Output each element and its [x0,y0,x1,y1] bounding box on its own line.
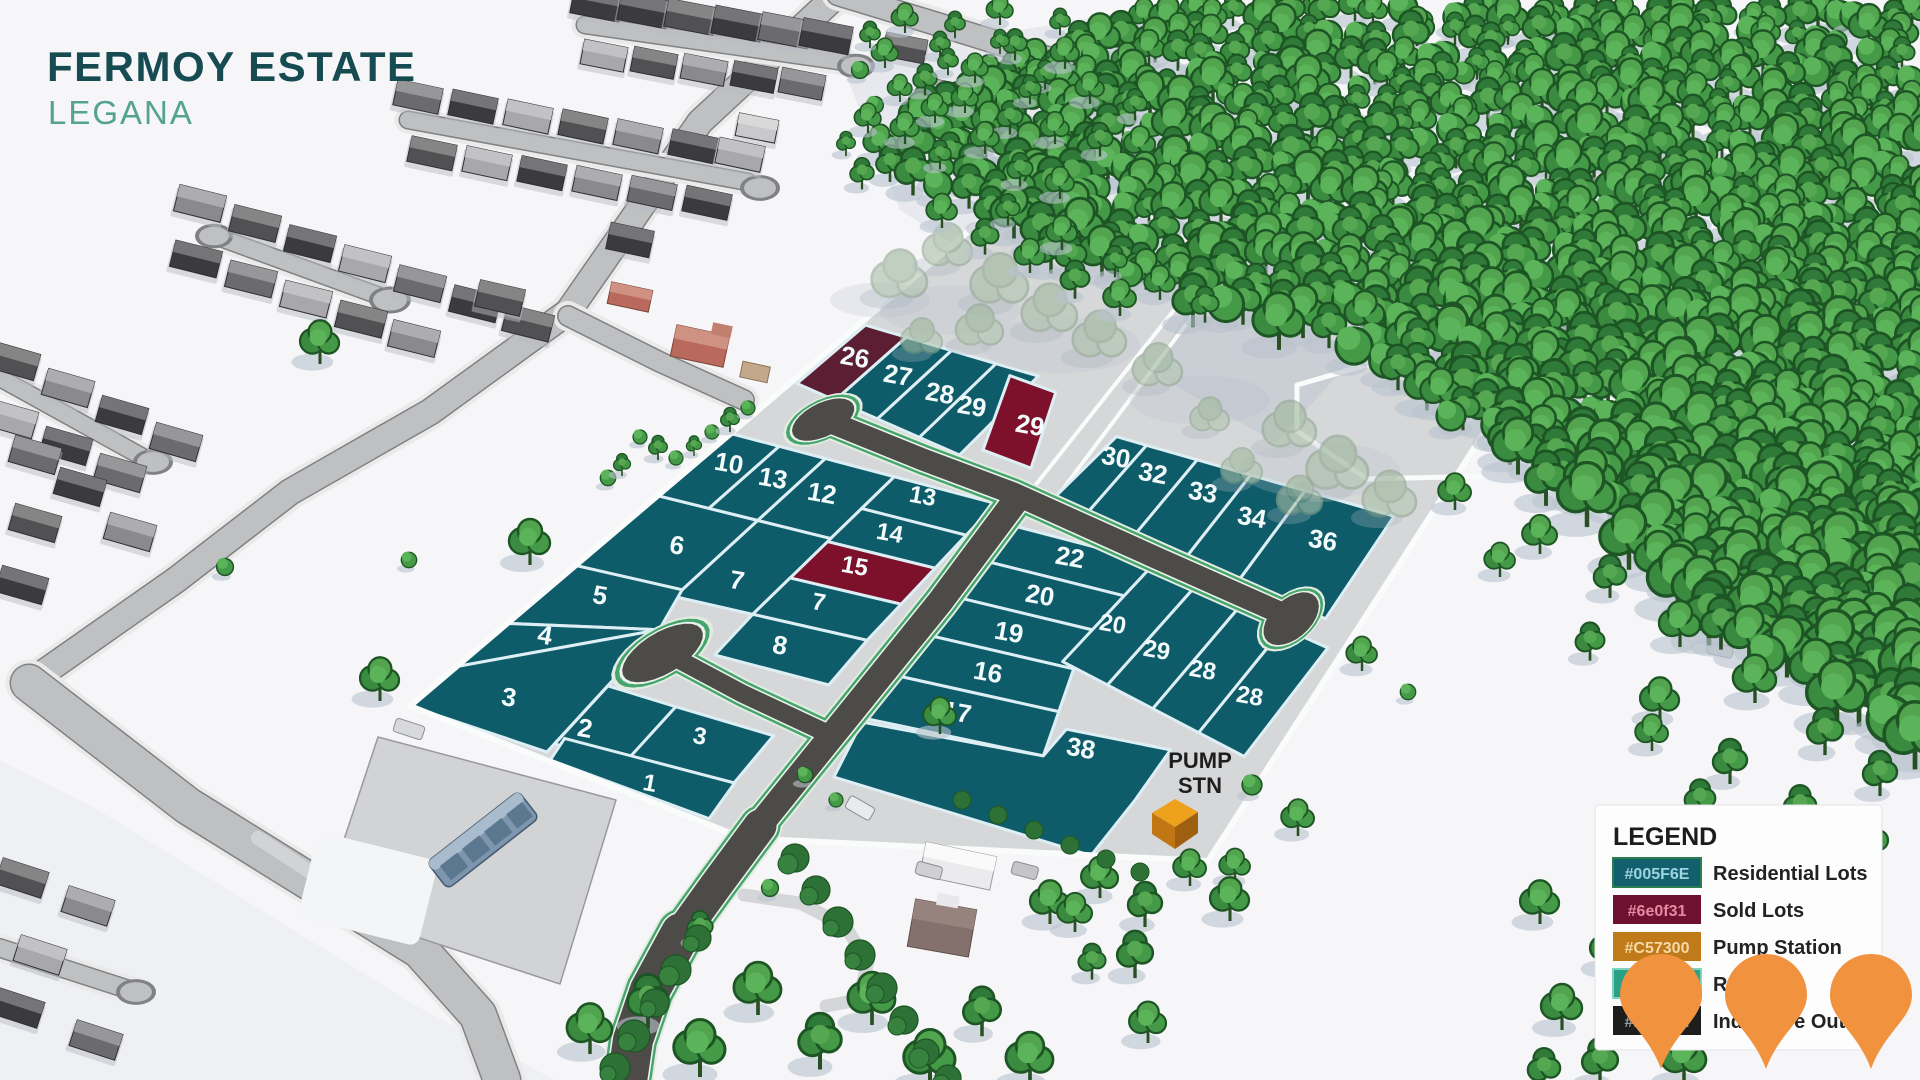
svg-text:26: 26 [838,340,872,375]
svg-text:Sold Lots: Sold Lots [1713,900,1804,922]
svg-text:33: 33 [1186,475,1220,510]
svg-text:34: 34 [1235,500,1269,535]
svg-text:15: 15 [839,551,870,582]
svg-text:10: 10 [712,446,746,481]
svg-text:28: 28 [1187,655,1218,686]
svg-text:20: 20 [1097,609,1128,640]
svg-text:13: 13 [907,481,938,512]
svg-text:29: 29 [1141,635,1172,666]
svg-text:#005F6E: #005F6E [1625,866,1690,883]
svg-text:28: 28 [923,376,957,411]
svg-text:20: 20 [1023,578,1057,613]
svg-text:Residential Lots: Residential Lots [1713,863,1867,885]
svg-text:STN: STN [1178,773,1222,798]
svg-text:PUMP: PUMP [1168,748,1232,773]
svg-text:30: 30 [1099,440,1133,475]
svg-text:16: 16 [971,655,1005,690]
svg-text:22: 22 [1053,540,1087,575]
svg-text:FERMOY ESTATE: FERMOY ESTATE [47,43,417,90]
svg-text:29: 29 [955,389,989,424]
svg-text:#6e0f31: #6e0f31 [1628,903,1687,920]
svg-text:LEGEND: LEGEND [1613,823,1717,851]
svg-text:19: 19 [992,615,1026,650]
svg-text:27: 27 [881,358,915,393]
svg-text:38: 38 [1064,731,1098,766]
svg-text:12: 12 [805,476,839,511]
svg-text:32: 32 [1136,456,1170,491]
svg-text:29: 29 [1013,408,1047,443]
svg-text:13: 13 [756,461,790,496]
svg-text:28: 28 [1234,681,1265,712]
svg-text:36: 36 [1306,523,1340,558]
svg-text:LEGANA: LEGANA [48,94,194,131]
svg-text:14: 14 [874,518,906,549]
